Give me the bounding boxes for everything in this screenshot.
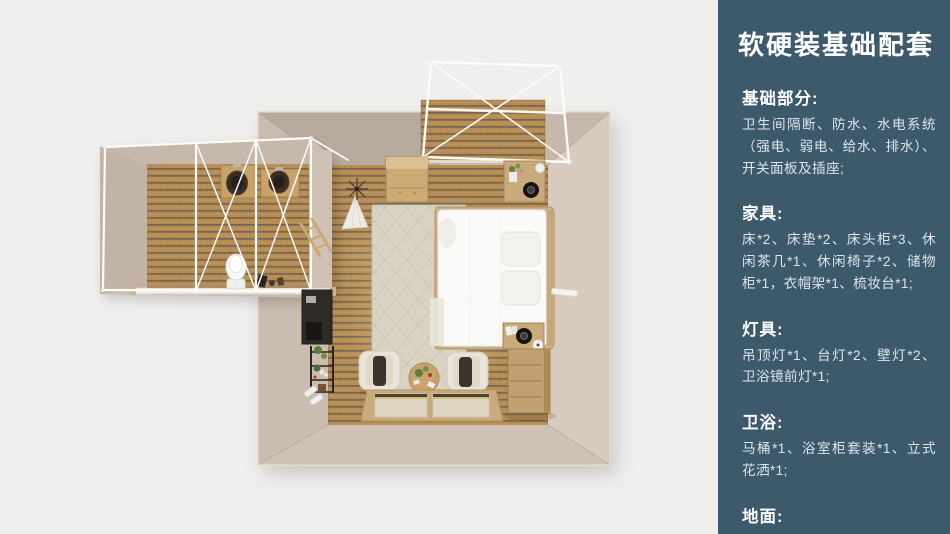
- section-furniture-body: 床*2、床垫*2、床头柜*3、休闲茶几*1、休闲椅子*2、储物柜*1，衣帽架*1…: [742, 229, 936, 294]
- slide: 软硬装基础配套 基础部分: 卫生间隔断、防水、水电系统（强电、弱电、给水、排水）…: [0, 0, 950, 534]
- nightstand-bottom: [503, 323, 544, 350]
- cup: [536, 164, 545, 173]
- bed-fringe-throw: [430, 298, 444, 346]
- bathroom-annex: [100, 136, 348, 298]
- faucet-left: [233, 163, 241, 167]
- nightstand-top: [504, 161, 545, 202]
- bathroom-junction-wall: [309, 150, 332, 298]
- throw-pillow: [438, 218, 456, 248]
- dresser: [504, 349, 556, 421]
- faucet-right: [275, 167, 283, 171]
- pillow-2: [502, 271, 540, 305]
- section-lighting: 灯具: 吊顶灯*1、台灯*2、壁灯*2、卫浴镜前灯*1;: [742, 316, 936, 389]
- armchair-left: [359, 351, 400, 396]
- floorplan-svg: [0, 0, 718, 534]
- bathroom-wall-left: [100, 147, 147, 294]
- section-furniture: 家具: 床*2、床垫*2、床头柜*3、休闲茶几*1、休闲椅子*2、储物柜*1，衣…: [742, 200, 936, 294]
- section-furniture-heading: 家具:: [742, 200, 936, 224]
- section-bathroom: 卫浴: 马桶*1、浴室柜套装*1、立式花洒*1;: [742, 409, 936, 482]
- sidebar: 软硬装基础配套 基础部分: 卫生间隔断、防水、水电系统（强电、弱电、给水、排水）…: [718, 0, 950, 534]
- section-basics-body: 卫生间隔断、防水、水电系统（强电、弱电、给水、排水）、开关面板及插座;: [742, 114, 936, 179]
- vase: [509, 172, 517, 182]
- section-flooring: 地面: 强化木地板、卫生间防滑防潮石塑板;: [742, 503, 936, 534]
- section-basics: 基础部分: 卫生间隔断、防水、水电系统（强电、弱电、给水、排水）、开关面板及插座…: [742, 85, 936, 179]
- section-basics-heading: 基础部分:: [742, 85, 936, 109]
- section-lighting-heading: 灯具:: [742, 316, 936, 340]
- section-bathroom-body: 马桶*1、浴室柜套装*1、立式花洒*1;: [742, 438, 936, 482]
- section-lighting-body: 吊顶灯*1、台灯*2、壁灯*2、卫浴镜前灯*1;: [742, 345, 936, 389]
- tv-console: [302, 290, 332, 344]
- floor-mats: [361, 390, 503, 421]
- section-flooring-heading: 地面:: [742, 503, 936, 527]
- floorplan-render: [0, 0, 718, 534]
- section-bathroom-heading: 卫浴:: [742, 409, 936, 433]
- sidebar-title: 软硬装基础配套: [738, 30, 936, 61]
- headboard: [547, 211, 555, 345]
- pillow-1: [502, 232, 540, 266]
- storage-cabinet-top: [386, 157, 428, 202]
- ceiling-ornament: [346, 178, 368, 200]
- basin-right-bowl: [274, 176, 285, 189]
